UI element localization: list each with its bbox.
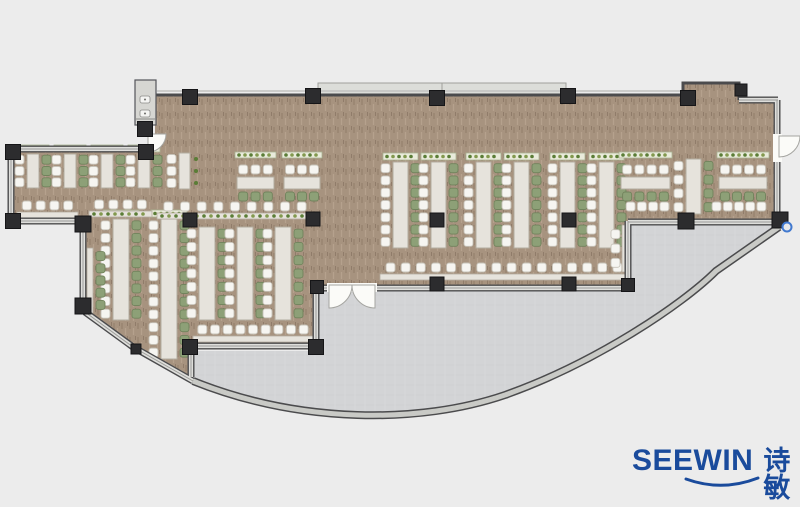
plant [120,212,124,216]
chair-white [50,201,59,210]
chair-green [42,178,51,187]
chair-white [401,263,410,272]
plant [174,214,178,218]
plant [265,214,269,218]
chair-green [635,192,644,201]
plant [293,214,297,218]
desk-cluster [381,153,420,248]
chair-white [261,325,270,334]
desk-cluster [502,153,541,248]
plant [552,155,556,159]
chair-green [79,178,88,187]
desk-table [476,162,491,248]
plant [737,153,741,157]
plant [99,212,103,216]
plant [447,155,451,159]
chair-white [492,263,501,272]
chair-white [587,225,596,234]
floorplan-canvas: SEEWIN 诗敏 [0,0,800,507]
plant [286,214,290,218]
structural-column [183,90,198,105]
chair-white [149,221,158,230]
chair-green [578,237,587,246]
chair-white [381,225,390,234]
chair-white [263,296,272,305]
chair-white [310,165,319,174]
plant [243,153,247,157]
chair-white [15,167,24,176]
desk-table [621,177,670,189]
plant [403,155,407,159]
chair-white [249,325,258,334]
chair-white [649,202,658,211]
structural-column [183,340,198,355]
chair-white [464,188,473,197]
structural-column [678,213,694,229]
desk-table [199,227,215,320]
desk-table [101,154,113,188]
chair-green [132,284,141,293]
chair-white [548,213,557,222]
plant [385,155,389,159]
chair-white [502,176,511,185]
chair-green [116,167,125,176]
chair-green [647,192,656,201]
plant [615,155,619,159]
bar-counter [17,212,78,218]
structural-column [75,216,91,232]
chair-white [721,165,730,174]
chair-green [180,323,189,332]
desk-table [393,162,408,248]
desk-table [237,227,253,320]
plant [512,155,516,159]
chair-white [95,200,104,209]
chair-white [263,229,272,238]
chair-white [568,263,577,272]
chair-white [735,202,744,211]
chair-white [101,233,110,242]
plant [570,155,574,159]
plant [591,155,595,159]
right-door-leaf [779,136,800,157]
chair-white [298,165,307,174]
chair-green [449,213,458,222]
chair-white [274,325,283,334]
chair-white [502,164,511,173]
chair-green [704,161,713,170]
chair-green [578,164,587,173]
plant [597,155,601,159]
chair-white [167,167,176,176]
plant [296,153,300,157]
brand-wordmark: SEEWIN [632,446,753,476]
plant [468,155,472,159]
plant [749,153,753,157]
bar-counter [193,336,313,342]
structural-column [306,212,320,226]
desk-cluster [419,153,458,248]
plant [621,153,625,157]
chair-white [225,242,234,251]
chair-white [464,213,473,222]
chair-white [52,167,61,176]
plant [141,212,145,216]
plant [725,153,729,157]
desk-table [686,159,701,214]
plant [167,214,171,218]
chair-white [712,202,721,211]
chair-white [522,263,531,272]
chair-white [502,225,511,234]
desk-table [179,153,190,189]
plant [639,153,643,157]
chair-white [225,282,234,291]
chair-white [187,296,196,305]
chair-white [502,213,511,222]
structural-column [562,277,576,291]
chair-green [578,188,587,197]
chair-white [674,175,683,184]
chair-green [449,201,458,210]
plant [244,214,248,218]
plant [153,212,157,216]
plant [645,153,649,157]
plant [564,155,568,159]
chair-white [548,176,557,185]
chair-white [187,269,196,278]
plant [223,214,227,218]
chair-white [64,201,73,210]
chair-white [187,242,196,251]
structural-column [6,145,21,160]
chair-white [548,188,557,197]
plant [267,153,271,157]
chair-white [419,188,428,197]
desk-table [514,162,529,248]
chair-white [281,202,290,211]
desk-table [431,162,446,248]
chair-white [419,164,428,173]
plant [237,153,241,157]
chair-white [239,165,248,174]
chair-green [617,201,626,210]
chair-white [587,237,596,246]
chair-green [578,213,587,222]
plant [127,212,131,216]
chair-white [419,213,428,222]
chair-green [42,167,51,176]
chair-green [96,300,105,309]
chair-white [89,178,98,187]
chair-white [462,263,471,272]
chair-green [132,271,141,280]
desk-table [27,154,39,188]
chair-green [96,252,105,261]
structural-column [562,213,576,227]
chair-white [297,202,306,211]
chair-green [578,176,587,185]
chair-white [502,188,511,197]
chair-white [187,309,196,318]
chair-white [223,325,232,334]
chair-white [381,164,390,173]
chair-white [419,237,428,246]
plant [113,212,117,216]
chair-green [449,164,458,173]
chair-white [299,325,308,334]
desk-table [237,177,274,189]
plant [194,169,198,173]
chair-green [116,155,125,164]
chair-green [153,155,162,164]
chair-green [96,288,105,297]
chair-green [132,233,141,242]
plant [429,155,433,159]
chair-white [381,188,390,197]
structural-column [430,213,444,227]
plant [663,153,667,157]
chair-white [225,309,234,318]
chair-white [198,325,207,334]
chair-white [674,203,683,212]
bar-counter [380,274,628,280]
chair-white [149,323,158,332]
plant [134,212,138,216]
chair-green [116,178,125,187]
chair-white [464,225,473,234]
chair-green [132,259,141,268]
chair-green [617,213,626,222]
chair-white [637,202,646,211]
desk-table [64,154,76,188]
structural-column [306,89,321,104]
chair-white [381,237,390,246]
brand-cjk: 诗敏 [763,448,800,502]
chair-white [164,202,173,211]
plant [423,155,427,159]
structural-column [75,298,91,314]
chair-green [298,192,307,201]
logo-swoosh-icon [684,476,760,490]
chair-green [132,297,141,306]
chair-white [583,263,592,272]
chair-white [674,189,683,198]
chair-green [239,192,248,201]
chair-white [431,263,440,272]
plant [633,153,637,157]
chair-green [286,192,295,201]
chair-white [149,234,158,243]
chair-green [745,192,754,201]
chair-white [264,202,273,211]
chair-white [733,165,742,174]
structural-column [681,91,696,106]
plant [409,155,413,159]
chair-white [745,165,754,174]
plant [609,155,613,159]
plant [530,155,534,159]
chair-white [181,202,190,211]
plant [603,155,607,159]
chair-white [225,296,234,305]
structural-column [622,279,635,292]
chair-white [464,164,473,173]
structural-column [561,89,576,104]
plant [272,214,276,218]
chair-green [449,225,458,234]
chair-white [22,201,31,210]
chair-white [419,225,428,234]
chair-white [263,309,272,318]
plant [743,153,747,157]
chair-white [211,325,220,334]
plant [524,155,528,159]
chair-white [149,246,158,255]
chair-white [548,201,557,210]
plant [92,212,96,216]
chair-white [236,325,245,334]
chair-green [79,167,88,176]
plant [651,153,655,157]
chair-white [659,165,668,174]
chair-green [294,282,303,291]
chair-white [552,263,561,272]
plant [255,153,259,157]
chair-white [149,272,158,281]
chair-green [532,237,541,246]
plant [290,153,294,157]
chair-white [149,310,158,319]
chair-white [286,165,295,174]
plant [480,155,484,159]
desk-table [560,162,575,248]
plant [314,153,318,157]
desk-table [161,219,177,359]
plant [391,155,395,159]
chair-green [153,167,162,176]
chair-white [381,176,390,185]
structural-column [430,277,444,291]
plant [160,214,164,218]
chair-white [101,221,110,230]
plant [194,181,198,185]
chair-green [96,276,105,285]
plant [308,153,312,157]
plant [284,153,288,157]
chair-white [263,165,272,174]
plant [202,214,206,218]
chair-white [225,256,234,265]
chair-green [532,213,541,222]
chair-white [548,164,557,173]
chair-white [548,225,557,234]
plant [209,214,213,218]
desk-cluster [101,210,141,320]
floorplan [0,0,800,507]
chair-white [674,161,683,170]
chair-green [532,225,541,234]
brand-logo: SEEWIN 诗敏 [632,446,800,502]
chair-green [42,155,51,164]
chair-white [36,201,45,210]
plant [237,214,241,218]
structural-column [311,281,324,294]
chair-green [153,178,162,187]
plant [731,153,735,157]
annotation-marker [783,223,792,232]
chair-white [660,202,669,211]
chair-green [294,269,303,278]
chair-white [137,200,146,209]
chair-white [247,202,256,211]
chair-green [704,175,713,184]
plant [492,155,496,159]
structural-column [183,213,197,227]
chair-white [381,213,390,222]
chair-white [109,200,118,209]
structural-column [139,145,154,160]
chair-white [502,237,511,246]
chair-green [132,221,141,230]
chair-green [659,192,668,201]
chair-white [225,229,234,238]
chair-white [746,202,755,211]
chair-green [532,201,541,210]
plant [251,214,255,218]
chair-white [757,165,766,174]
chair-white [101,309,110,318]
chair-white [52,178,61,187]
chair-white [89,155,98,164]
plant [300,214,304,218]
chair-white [149,297,158,306]
chair-white [611,258,620,267]
plant [249,153,253,157]
chair-green [294,256,303,265]
chair-green [449,176,458,185]
plant [441,155,445,159]
chair-white [502,201,511,210]
chair-green [449,188,458,197]
chair-white [126,167,135,176]
chair-white [231,202,240,211]
chair-white [263,242,272,251]
chair-white [149,285,158,294]
desk-table [113,219,129,320]
chair-white [167,179,176,188]
structural-column [138,122,153,137]
chair-white [225,269,234,278]
chair-white [381,201,390,210]
chair-white [187,229,196,238]
structural-column [430,91,445,106]
plant [657,153,661,157]
chair-green [263,192,272,201]
chair-white [635,165,644,174]
structural-column [131,344,141,354]
plant [230,214,234,218]
chair-white [464,201,473,210]
plant [576,155,580,159]
chair-white [419,201,428,210]
chair-white [723,202,732,211]
plant [518,155,522,159]
chair-green [132,309,141,318]
chair-white [626,202,635,211]
chair-white [167,155,176,164]
chair-green [532,164,541,173]
